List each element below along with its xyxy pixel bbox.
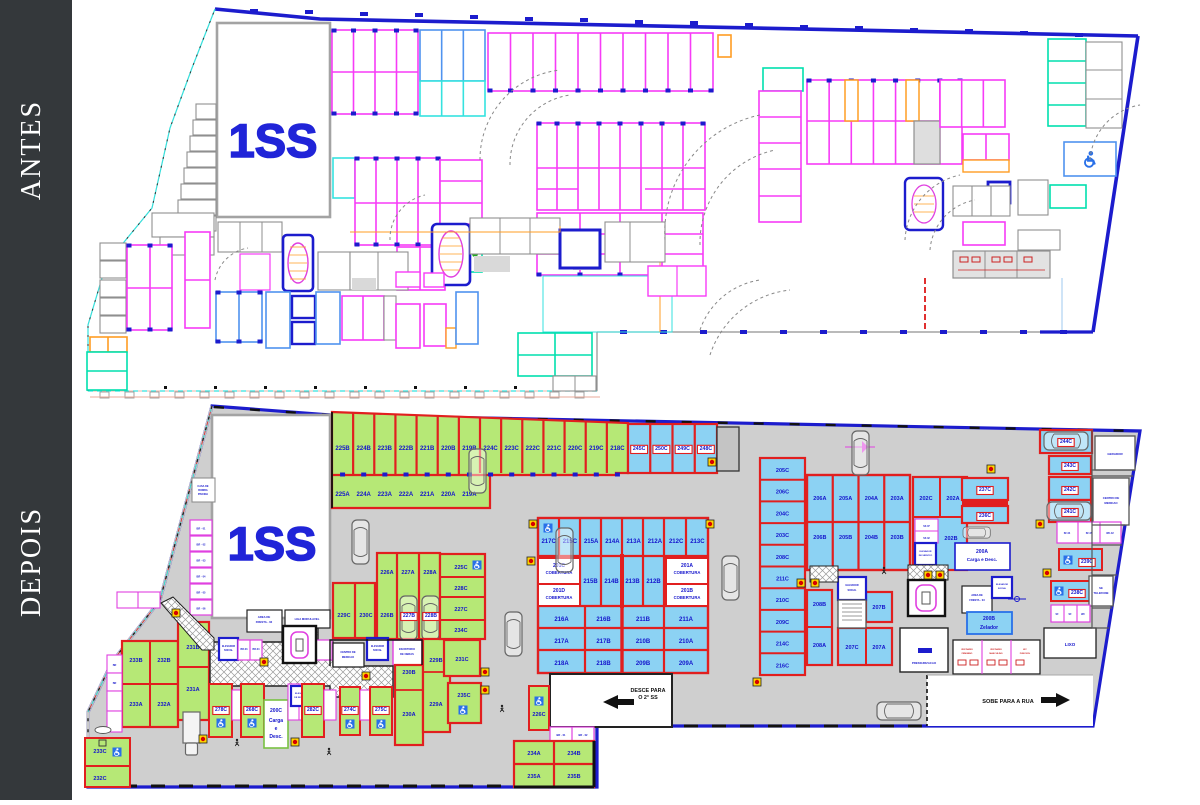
svg-text:215B: 215B <box>583 579 598 585</box>
svg-text:Zelador: Zelador <box>980 625 998 631</box>
svg-text:206C: 206C <box>776 490 789 496</box>
svg-text:237C: 237C <box>979 487 991 493</box>
svg-text:231C: 231C <box>455 657 468 663</box>
svg-text:212A: 212A <box>648 539 663 545</box>
svg-text:SOCIAL: SOCIAL <box>998 587 1007 590</box>
svg-text:205B: 205B <box>839 535 852 541</box>
svg-text:206B: 206B <box>813 535 826 541</box>
svg-text:223A: 223A <box>378 492 393 498</box>
svg-text:217A: 217A <box>554 639 569 645</box>
svg-text:229C: 229C <box>337 613 350 619</box>
svg-text:204C: 204C <box>776 511 789 517</box>
svg-text:207B: 207B <box>872 605 885 611</box>
svg-text:ELEVADOR: ELEVADOR <box>996 583 1008 586</box>
svg-text:212C: 212C <box>669 539 684 545</box>
svg-text:218B: 218B <box>596 661 611 667</box>
svg-text:282C: 282C <box>307 707 319 713</box>
svg-text:COBERTURA: COBERTURA <box>674 595 701 600</box>
svg-text:232A: 232A <box>157 702 170 708</box>
svg-text:PRESSURIZACAO: PRESSURIZACAO <box>912 661 937 665</box>
svg-text:226B: 226B <box>380 613 393 619</box>
svg-text:COBERTURA: COBERTURA <box>546 595 573 600</box>
svg-text:202B: 202B <box>944 536 957 542</box>
svg-text:COBERTURA: COBERTURA <box>674 570 701 575</box>
svg-text:VESTIARIO: VESTIARIO <box>990 648 1002 651</box>
svg-text:DE SERVICO: DE SERVICO <box>919 555 933 557</box>
svg-text:ELEVADOR: ELEVADOR <box>845 584 858 587</box>
svg-text:241C: 241C <box>1064 509 1076 515</box>
svg-text:201B: 201B <box>681 588 693 594</box>
svg-text:220B: 220B <box>441 446 456 452</box>
svg-text:212B: 212B <box>646 579 661 585</box>
svg-text:SF-04: SF-04 <box>1064 532 1071 535</box>
svg-text:227C: 227C <box>454 607 467 613</box>
svg-text:201A: 201A <box>681 563 693 569</box>
svg-text:222A: 222A <box>399 492 414 498</box>
svg-text:205A: 205A <box>839 496 852 502</box>
svg-text:Desc.: Desc. <box>269 734 283 740</box>
svg-text:214B: 214B <box>604 579 619 585</box>
svg-text:ELEVADOR: ELEVADOR <box>222 645 235 648</box>
svg-text:BR-03: BR-03 <box>241 648 249 651</box>
svg-text:225A: 225A <box>335 492 350 498</box>
svg-text:206A: 206A <box>813 496 826 502</box>
svg-text:221B: 221B <box>420 446 435 452</box>
svg-text:235A: 235A <box>527 774 540 780</box>
svg-text:SF-02: SF-02 <box>923 537 930 540</box>
svg-text:BOMBA: BOMBA <box>198 489 208 492</box>
svg-text:209C: 209C <box>776 620 789 626</box>
svg-text:GERADOR: GERADOR <box>1107 452 1123 456</box>
svg-text:FRESTA - 02: FRESTA - 02 <box>256 620 273 624</box>
svg-text:222B: 222B <box>399 446 414 452</box>
svg-text:218A: 218A <box>554 661 569 667</box>
svg-text:208A: 208A <box>813 643 826 649</box>
svg-text:SOCIAL: SOCIAL <box>224 649 234 652</box>
svg-text:BR-04: BR-04 <box>253 648 261 651</box>
svg-text:202C: 202C <box>919 496 932 502</box>
svg-text:MEDICAO: MEDICAO <box>342 655 354 659</box>
svg-text:227B: 227B <box>403 613 415 619</box>
svg-text:217C: 217C <box>541 539 556 545</box>
svg-text:222C: 222C <box>526 446 541 452</box>
svg-text:203A: 203A <box>891 496 904 502</box>
svg-text:BR: BR <box>113 664 117 667</box>
svg-text:210A: 210A <box>679 639 694 645</box>
svg-text:244C: 244C <box>1060 439 1072 445</box>
svg-text:208C: 208C <box>776 555 789 561</box>
svg-text:Carga e Desc.: Carga e Desc. <box>967 557 997 562</box>
svg-text:231B: 231B <box>186 645 199 651</box>
svg-text:230B: 230B <box>402 670 415 676</box>
svg-text:BR - 04: BR - 04 <box>197 575 206 579</box>
svg-text:211A: 211A <box>679 617 694 623</box>
svg-text:LIXO: LIXO <box>1065 642 1076 647</box>
svg-text:214C: 214C <box>776 642 789 648</box>
svg-text:BR: BR <box>113 682 117 685</box>
svg-text:242C: 242C <box>1064 487 1076 493</box>
svg-text:268C: 268C <box>246 707 258 713</box>
svg-text:209B: 209B <box>636 661 651 667</box>
svg-text:278C: 278C <box>215 707 227 713</box>
svg-text:207A: 207A <box>872 645 885 651</box>
svg-text:226C: 226C <box>532 712 545 718</box>
svg-text:214A: 214A <box>605 539 620 545</box>
svg-text:217B: 217B <box>596 639 611 645</box>
svg-text:234B: 234B <box>567 751 580 757</box>
svg-text:232C: 232C <box>93 776 106 782</box>
svg-text:236C: 236C <box>979 513 991 519</box>
svg-text:203C: 203C <box>776 533 789 539</box>
svg-text:223B: 223B <box>378 446 393 452</box>
svg-text:234C: 234C <box>454 628 467 634</box>
svg-text:WC: WC <box>1023 649 1027 651</box>
svg-text:DEPOIS: DEPOIS <box>16 507 47 617</box>
svg-text:229B: 229B <box>429 658 442 664</box>
svg-text:235C: 235C <box>457 693 470 699</box>
svg-text:233A: 233A <box>129 702 142 708</box>
svg-text:213B: 213B <box>625 579 640 585</box>
svg-text:AREA DE: AREA DE <box>971 593 983 597</box>
svg-text:220C: 220C <box>568 446 583 452</box>
svg-text:204A: 204A <box>865 496 878 502</box>
svg-text:231A: 231A <box>186 687 199 693</box>
svg-text:235B: 235B <box>567 774 580 780</box>
svg-text:224A: 224A <box>357 492 372 498</box>
svg-text:FEMININO: FEMININO <box>962 653 973 655</box>
svg-text:200C: 200C <box>270 708 282 714</box>
svg-text:SOCIAL: SOCIAL <box>847 589 857 592</box>
svg-text:BR - 06: BR - 06 <box>197 607 206 611</box>
svg-text:216C: 216C <box>776 663 789 669</box>
svg-text:ELEVADOR: ELEVADOR <box>920 550 932 553</box>
svg-text:200B: 200B <box>983 616 995 622</box>
svg-text:275C: 275C <box>375 707 387 713</box>
svg-text:201D: 201D <box>553 588 565 594</box>
svg-text:205C: 205C <box>776 468 789 474</box>
svg-text:BR - 02: BR - 02 <box>197 543 206 547</box>
svg-text:213A: 213A <box>626 539 641 545</box>
svg-text:203B: 203B <box>891 535 904 541</box>
svg-text:225C: 225C <box>454 565 467 571</box>
svg-text:DESCE PARA: DESCE PARA <box>631 688 666 694</box>
svg-text:BR - 03: BR - 03 <box>197 559 206 563</box>
svg-text:233C: 233C <box>93 749 106 755</box>
svg-text:TELEFONE: TELEFONE <box>1094 591 1109 595</box>
svg-text:DE OBRAS: DE OBRAS <box>400 652 414 656</box>
svg-text:245C: 245C <box>633 446 646 452</box>
svg-text:210C: 210C <box>776 598 789 604</box>
svg-text:FRESTA - 03: FRESTA - 03 <box>969 598 985 602</box>
svg-text:ANTES: ANTES <box>16 100 47 200</box>
svg-text:MEDICAO: MEDICAO <box>1104 501 1118 505</box>
svg-text:207C: 207C <box>845 645 858 651</box>
svg-text:221C: 221C <box>547 446 562 452</box>
svg-text:FUNCION.: FUNCION. <box>1020 653 1031 655</box>
svg-text:223C: 223C <box>505 446 520 452</box>
svg-text:O 2° SS: O 2° SS <box>638 695 658 701</box>
svg-text:VESTIARIO: VESTIARIO <box>961 648 973 651</box>
svg-text:WC: WC <box>1081 614 1085 616</box>
svg-text:BR - 02: BR - 02 <box>579 733 588 737</box>
svg-text:BR - 05: BR - 05 <box>197 591 206 595</box>
svg-text:243C: 243C <box>1064 463 1076 469</box>
svg-text:204B: 204B <box>865 535 878 541</box>
svg-text:232B: 232B <box>157 658 170 664</box>
svg-text:BR - 01: BR - 01 <box>197 527 206 531</box>
svg-text:SOBE PARA A RUA: SOBE PARA A RUA <box>982 699 1033 705</box>
svg-text:CASA DE: CASA DE <box>197 485 208 488</box>
svg-text:218C: 218C <box>610 446 625 452</box>
svg-text:MASCULINO: MASCULINO <box>989 652 1003 655</box>
svg-text:234A: 234A <box>527 751 540 757</box>
svg-text:233B: 233B <box>129 658 142 664</box>
svg-text:208B: 208B <box>813 602 826 608</box>
svg-text:228B: 228B <box>425 613 437 619</box>
svg-text:209A: 209A <box>679 661 694 667</box>
svg-text:ESCRITORIO: ESCRITORIO <box>399 647 415 651</box>
svg-text:229A: 229A <box>429 702 442 708</box>
svg-text:ELEVADOR: ELEVADOR <box>371 645 384 648</box>
svg-text:1SS: 1SS <box>229 114 318 167</box>
svg-text:210B: 210B <box>636 639 651 645</box>
svg-text:274C: 274C <box>344 707 356 713</box>
svg-text:WC-02: WC-02 <box>1106 532 1114 535</box>
svg-text:225B: 225B <box>335 446 350 452</box>
svg-text:211B: 211B <box>636 617 651 623</box>
svg-text:250C: 250C <box>655 446 668 452</box>
svg-text:BR - 01: BR - 01 <box>557 733 566 737</box>
svg-text:216A: 216A <box>554 617 569 623</box>
svg-text:202A: 202A <box>946 496 959 502</box>
svg-text:226A: 226A <box>380 570 393 576</box>
svg-text:228C: 228C <box>454 586 467 592</box>
svg-text:221A: 221A <box>420 492 435 498</box>
svg-text:e: e <box>275 726 278 732</box>
svg-text:216B: 216B <box>596 617 611 623</box>
svg-text:200A: 200A <box>976 549 988 555</box>
svg-text:CENTRO DE: CENTRO DE <box>1103 496 1120 500</box>
svg-text:220A: 220A <box>441 492 456 498</box>
svg-text:215A: 215A <box>584 539 599 545</box>
svg-text:LIGA MODULAVEL: LIGA MODULAVEL <box>295 617 320 621</box>
svg-text:Carga: Carga <box>269 718 283 724</box>
svg-text:SOCIAL: SOCIAL <box>373 649 383 652</box>
svg-text:CENTRO DE: CENTRO DE <box>340 650 356 654</box>
svg-text:213C: 213C <box>690 539 705 545</box>
svg-text:228A: 228A <box>423 570 436 576</box>
svg-text:238C: 238C <box>1071 590 1083 596</box>
svg-text:SF-07: SF-07 <box>923 525 930 528</box>
svg-text:230C: 230C <box>359 613 372 619</box>
svg-text:224B: 224B <box>357 446 372 452</box>
svg-text:249C: 249C <box>677 446 690 452</box>
svg-text:SE: SE <box>1099 586 1103 590</box>
svg-text:211C: 211C <box>776 577 789 583</box>
svg-text:248C: 248C <box>700 446 713 452</box>
svg-text:230A: 230A <box>402 712 415 718</box>
svg-text:PISCINA: PISCINA <box>198 493 208 496</box>
svg-text:AREA DE: AREA DE <box>258 615 271 619</box>
svg-text:227A: 227A <box>401 570 414 576</box>
svg-text:219C: 219C <box>589 446 604 452</box>
svg-text:1SS: 1SS <box>228 517 317 570</box>
